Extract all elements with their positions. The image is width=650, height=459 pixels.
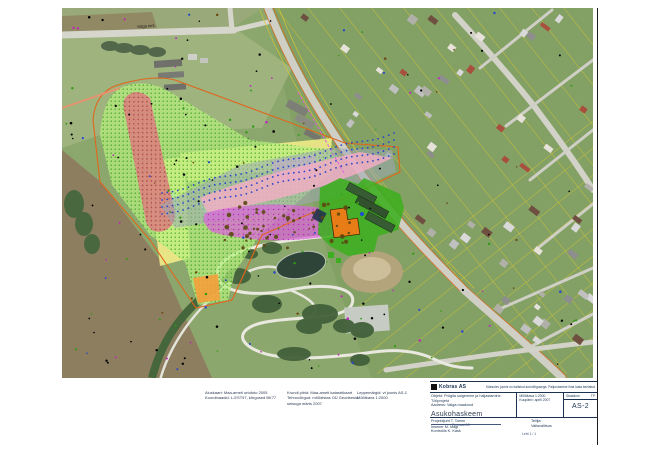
note-line: Tehnovõrgud: mõõdistas OÜ Geodeesia: [287, 395, 365, 400]
title-block-footer-row: Projektijuht T. Tamm Insener M. Mägi Kon…: [430, 418, 597, 442]
map-notes-block-3: Leppemärgid: vt joonis AS-1 Mõõtkava 1:2…: [357, 390, 437, 401]
copyright-note: Käesolev joonis on kaitstud autoriõiguse…: [466, 385, 597, 389]
note-line: seisuga märts 2007: [287, 401, 365, 406]
title-block-header: Kobras AS Käesolev joonis on kaitstud au…: [430, 381, 597, 393]
client-value: Vallavalitsus: [531, 424, 595, 429]
object-line: Aadress: Valga maakond: [431, 403, 514, 408]
title-block-main-row: Objekt: Prügila sulgemine ja haljastamin…: [430, 393, 597, 418]
drawing-sheet: Valga mnt Aluskaart: Maa-ameti ortofoto …: [0, 0, 650, 459]
sports-field: [341, 251, 403, 293]
note-line: Mõõtkava 1:2000: [357, 395, 437, 400]
stage-number-cell: Staadium TP AS-2: [564, 393, 597, 417]
map-notes-block-2: Krundi piirid: Maa-ameti katastrikaart T…: [287, 390, 365, 406]
authors-cell: Projektijuht T. Tamm Insener M. Mägi Kon…: [430, 418, 519, 442]
facility-blue-point: [360, 212, 364, 216]
stage-label: Staadium: [566, 394, 579, 398]
object-line: Objekt: Prügila sulgemine ja haljastamin…: [431, 394, 514, 403]
date-line: Kuupäev: aprill 2007: [519, 398, 561, 402]
sheet-border: [597, 8, 598, 445]
note-line: Koordinaadid: L-EST97, kõrgused BK77: [205, 395, 280, 400]
author-line: Kontrollis K. Kask: [431, 429, 517, 434]
drawing-number: AS-2: [564, 403, 597, 412]
aerial-map: Valga mnt: [62, 8, 593, 378]
map-viewport: Valga mnt: [62, 8, 593, 378]
format-note: Formaat A3: [452, 423, 470, 427]
scale-date-cell: Mõõtkava 1:2000 Kuupäev: aprill 2007: [517, 393, 564, 417]
sheet-note: Leht 1 / 1: [522, 432, 536, 436]
company-logo-icon: [431, 384, 437, 390]
company-name: Kobras AS: [439, 384, 466, 390]
map-notes-block-1: Aluskaart: Maa-ameti ortofoto 2005 Koord…: [205, 390, 280, 401]
client-cell: Tellija: Vallavalitsus: [519, 418, 597, 442]
stage-value: TP: [591, 394, 595, 398]
title-block: Kobras AS Käesolev joonis on kaitstud au…: [430, 381, 597, 445]
object-cell: Objekt: Prügila sulgemine ja haljastamin…: [430, 393, 517, 417]
